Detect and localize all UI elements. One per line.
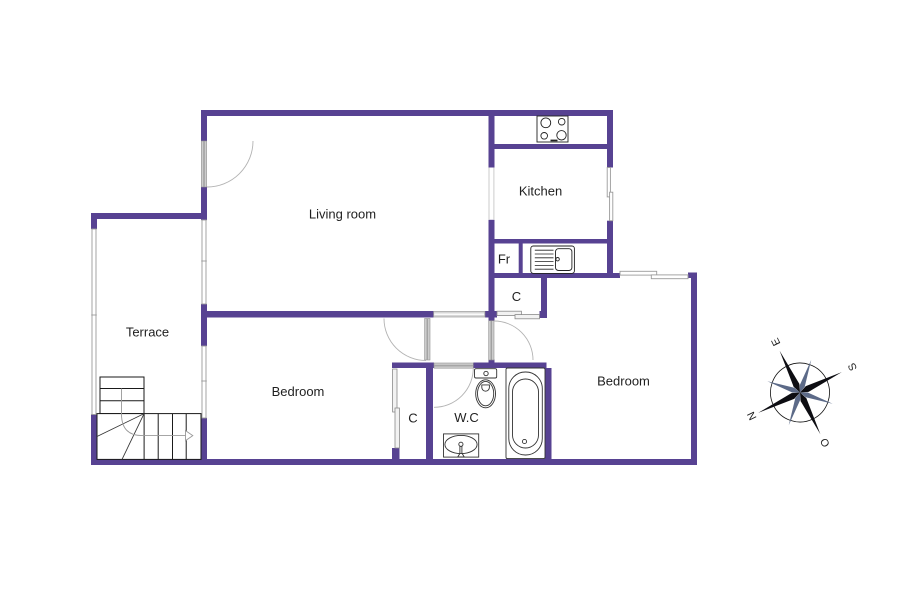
svg-text:C: C — [512, 289, 521, 304]
svg-text:Living room: Living room — [309, 206, 376, 221]
svg-text:Kitchen: Kitchen — [519, 184, 562, 199]
svg-text:Terrace: Terrace — [126, 325, 169, 340]
svg-text:W.C: W.C — [454, 410, 479, 425]
svg-text:Bedroom: Bedroom — [597, 374, 650, 389]
svg-text:C: C — [408, 411, 417, 426]
svg-text:Bedroom: Bedroom — [272, 384, 325, 399]
svg-text:Fr: Fr — [498, 252, 511, 267]
